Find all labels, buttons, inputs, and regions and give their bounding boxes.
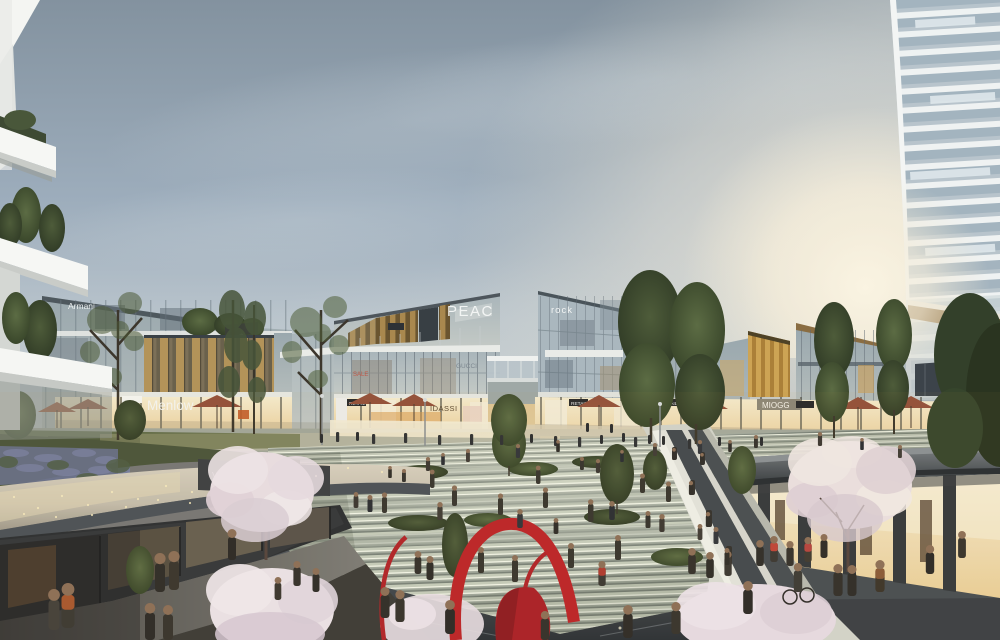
svg-text:GUCCI: GUCCI xyxy=(456,363,477,370)
svg-text:rock: rock xyxy=(551,305,573,316)
svg-text:SALE: SALE xyxy=(353,372,368,378)
svg-text:PEAC: PEAC xyxy=(447,303,494,320)
svg-text:Armani: Armani xyxy=(68,301,95,311)
